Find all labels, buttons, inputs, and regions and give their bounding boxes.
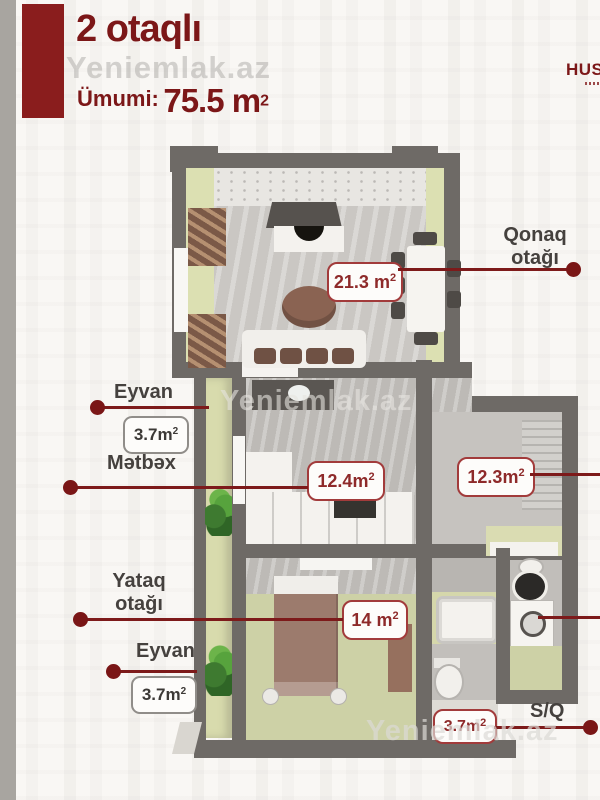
total-area-label: Ümumi: xyxy=(77,86,159,111)
dining-chair xyxy=(391,302,405,319)
leader-dot-living xyxy=(566,262,581,277)
area-value-bedroom: 14 m xyxy=(351,610,392,631)
area-sup-balcony-bottom: 2 xyxy=(181,686,187,697)
bed-foot-sphere xyxy=(330,688,347,705)
sofa xyxy=(242,330,366,368)
developer-logo-subtext xyxy=(585,82,599,85)
label-living-room: Qonaq otağı xyxy=(490,224,580,270)
living-room-ceiling-band xyxy=(186,168,444,206)
sofa-cushion xyxy=(254,348,276,364)
area-tag-kitchen: 12.4m2 xyxy=(307,461,385,501)
area-sup-hall: 2 xyxy=(518,467,524,479)
total-area-value: 75.5 m xyxy=(163,82,260,119)
wall-sq-left xyxy=(496,548,510,692)
sq-floor-green xyxy=(510,646,562,692)
sq-toilet xyxy=(512,570,548,603)
leader-dot-sq xyxy=(583,720,598,735)
wall-kitchen-right xyxy=(416,360,432,560)
area-value-kitchen: 12.4m xyxy=(317,471,368,492)
leader-line-sq xyxy=(494,726,590,729)
sofa-cushion xyxy=(332,348,354,364)
area-value-living: 21.3 m xyxy=(334,272,390,293)
wall-bedroom-left xyxy=(232,560,246,746)
dining-chair xyxy=(414,332,438,345)
floor-plan-listing-image: 2 otaqlı Yeniemlak.az Ümumi: 75.5 m2 HUS xyxy=(0,0,600,800)
total-area: Ümumi: 75.5 m2 xyxy=(77,82,269,120)
leader-line-balcony-top xyxy=(97,406,209,409)
bed-foot-sphere xyxy=(262,688,279,705)
dining-chair xyxy=(413,232,437,245)
dining-table xyxy=(407,246,445,332)
area-sup-living: 2 xyxy=(390,272,396,284)
listing-title: 2 otaqlı xyxy=(76,8,201,51)
leader-dot-bedroom xyxy=(73,612,88,627)
wall-plan-right xyxy=(562,396,578,704)
label-bedroom-line2: otağı xyxy=(96,593,182,616)
label-kitchen: Mətbəx xyxy=(107,452,176,475)
blinds-bottom xyxy=(188,314,226,368)
accent-bar xyxy=(22,4,64,118)
tv-panel xyxy=(266,202,342,228)
living-window xyxy=(174,248,188,332)
total-area-sup: 2 xyxy=(260,93,269,110)
area-tag-hall: 12.3m2 xyxy=(457,457,535,497)
bathtub xyxy=(436,596,498,644)
area-tag-bedroom: 14 m2 xyxy=(342,600,408,640)
area-value-bathroom: 3.7m xyxy=(444,718,480,736)
area-tag-living: 21.3 m2 xyxy=(327,262,403,302)
kitchen-sink xyxy=(288,385,310,401)
leader-line-washer xyxy=(538,616,600,619)
area-tag-bathroom: 3.7m2 xyxy=(433,709,497,744)
wall-bathroom-left xyxy=(416,558,432,742)
blinds-top xyxy=(188,208,226,266)
leader-line-kitchen xyxy=(70,486,308,489)
label-balcony-top: Eyvan xyxy=(114,381,173,404)
area-value-balcony-bottom: 3.7m xyxy=(142,685,181,705)
label-living-line1: Qonaq xyxy=(490,224,580,247)
plant xyxy=(205,640,235,696)
label-balcony-bottom: Eyvan xyxy=(136,640,195,663)
toilet xyxy=(434,664,464,700)
area-tag-balcony-top: 3.7m2 xyxy=(123,416,189,454)
sofa-cushion xyxy=(280,348,302,364)
area-tag-balcony-bottom: 3.7m2 xyxy=(131,676,197,714)
bedroom-wall-opening xyxy=(300,558,372,570)
bed-headboard xyxy=(274,576,338,596)
leader-dot-kitchen xyxy=(63,480,78,495)
bathroom-upper-floor xyxy=(432,558,498,594)
area-sup-bedroom: 2 xyxy=(392,610,398,622)
kitchen-window xyxy=(233,436,245,504)
leader-line-hall xyxy=(530,473,600,476)
bed xyxy=(274,594,338,696)
label-bathroom: S/Q xyxy=(530,700,564,723)
leader-dot-balcony-top xyxy=(90,400,105,415)
plant xyxy=(205,484,235,536)
area-sup-kitchen: 2 xyxy=(368,471,374,483)
leader-line-balcony-bottom xyxy=(113,670,197,673)
leader-line-bedroom xyxy=(80,618,343,621)
area-value-balcony-top: 3.7m xyxy=(134,425,173,445)
leader-dot-balcony-bottom xyxy=(106,664,121,679)
left-edge-strip xyxy=(0,0,16,800)
area-sup-balcony-top: 2 xyxy=(173,426,179,437)
washing-machine-door xyxy=(520,611,546,637)
area-sup-bathroom: 2 xyxy=(480,717,486,729)
label-bedroom-line1: Yataq xyxy=(96,570,182,593)
developer-logo: HUS xyxy=(566,60,600,80)
area-value-hall: 12.3m xyxy=(467,467,518,488)
sofa-cushion xyxy=(306,348,328,364)
label-bedroom: Yataq otağı xyxy=(96,570,182,616)
dining-chair xyxy=(447,291,461,308)
leader-line-living xyxy=(398,268,576,271)
